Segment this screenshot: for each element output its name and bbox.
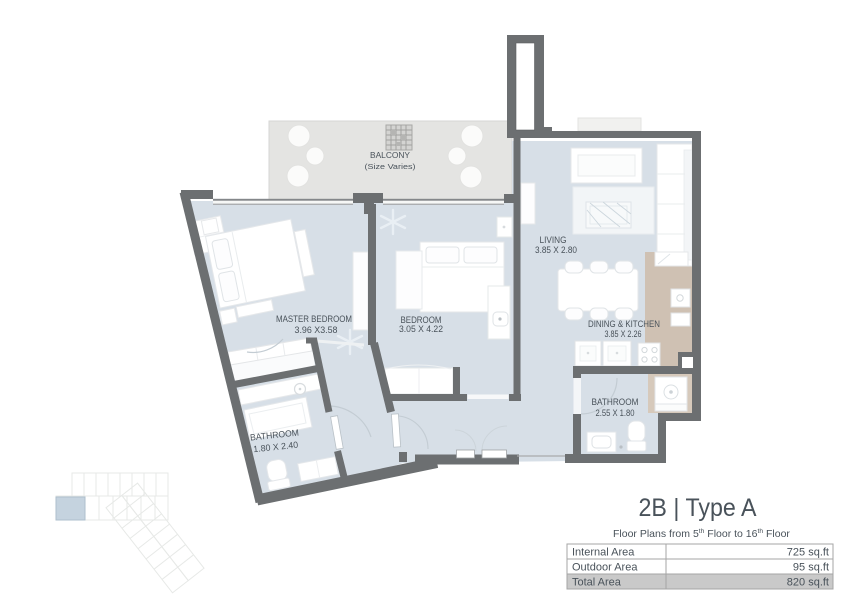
- svg-text:MASTER BEDROOM: MASTER BEDROOM: [276, 314, 352, 324]
- svg-text:BALCONY: BALCONY: [370, 151, 411, 160]
- svg-text:Internal Area: Internal Area: [572, 547, 635, 559]
- svg-text:2B | Type A: 2B | Type A: [639, 494, 757, 522]
- svg-text:3.85 X 2.26: 3.85 X 2.26: [605, 329, 642, 339]
- svg-text:LIVING: LIVING: [540, 235, 567, 245]
- svg-text:3.96 X3.58: 3.96 X3.58: [295, 325, 338, 335]
- svg-text:3.85 X 2.80: 3.85 X 2.80: [535, 245, 577, 255]
- svg-text:(Size Varies): (Size Varies): [365, 162, 417, 171]
- svg-text:3.05 X 4.22: 3.05 X 4.22: [399, 324, 443, 334]
- svg-text:820 sq.ft: 820 sq.ft: [787, 577, 829, 589]
- svg-text:Outdoor Area: Outdoor Area: [572, 562, 638, 574]
- svg-text:DINING & KITCHEN: DINING & KITCHEN: [588, 319, 660, 329]
- svg-text:Total Area: Total Area: [572, 577, 622, 589]
- svg-text:BATHROOM: BATHROOM: [592, 397, 639, 407]
- svg-text:725 sq.ft: 725 sq.ft: [787, 547, 829, 559]
- svg-text:2.55 X 1.80: 2.55 X 1.80: [596, 408, 635, 418]
- svg-text:95 sq.ft: 95 sq.ft: [793, 562, 829, 574]
